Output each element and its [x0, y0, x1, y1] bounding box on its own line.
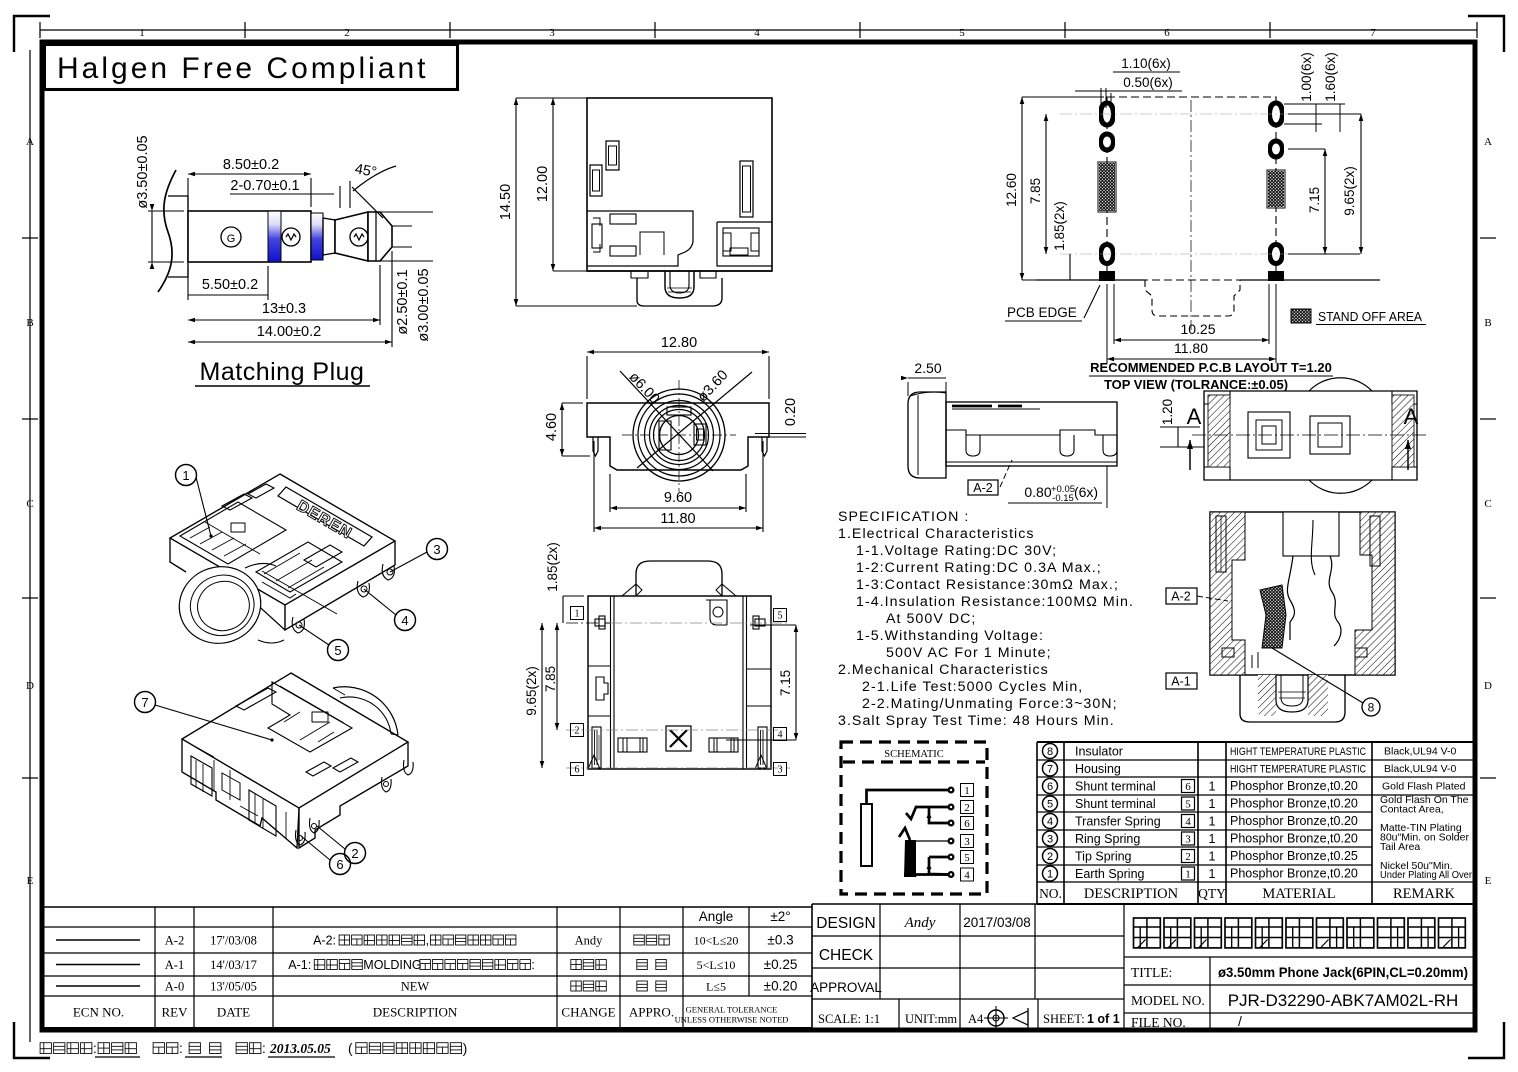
svg-text:C: C [1484, 498, 1491, 510]
svg-text:A-0: A-0 [165, 980, 184, 994]
svg-text:Phosphor Bronze,t0.20: Phosphor Bronze,t0.20 [1230, 779, 1358, 793]
svg-text:Black,UL94 V-0: Black,UL94 V-0 [1384, 746, 1457, 758]
svg-text:Insulator: Insulator [1075, 745, 1123, 759]
svg-text:±2°: ±2° [770, 909, 790, 924]
svg-text:SCHEMATIC: SCHEMATIC [884, 749, 944, 760]
svg-text:At 500V DC;: At 500V DC; [886, 611, 976, 627]
svg-text:PJR-D32290-ABK7AM02L-RH: PJR-D32290-ABK7AM02L-RH [1228, 991, 1459, 1010]
svg-text:A-1: A-1 [1171, 675, 1191, 689]
svg-text:Phosphor Bronze,t0.20: Phosphor Bronze,t0.20 [1230, 832, 1358, 846]
svg-text:11.80: 11.80 [1174, 340, 1208, 356]
svg-text:NO.: NO. [1039, 886, 1062, 901]
svg-text:Tip Spring: Tip Spring [1075, 850, 1132, 864]
svg-text:SHEET:: SHEET: [1043, 1012, 1085, 1026]
svg-text:,: , [426, 934, 429, 948]
svg-text:3: 3 [964, 836, 970, 848]
svg-text:4: 4 [754, 27, 760, 39]
svg-text:ø3.50mm Phone Jack(6PIN,CL=0.2: ø3.50mm Phone Jack(6PIN,CL=0.20mm) [1218, 965, 1468, 980]
svg-text:4: 4 [778, 730, 783, 741]
svg-text:A: A [1484, 136, 1492, 148]
svg-text::: : [179, 1041, 183, 1056]
svg-text:1: 1 [1209, 797, 1216, 811]
svg-text:5: 5 [778, 611, 783, 622]
svg-text:Matching Plug: Matching Plug [200, 358, 365, 386]
svg-text:Earth Spring: Earth Spring [1075, 867, 1145, 881]
svg-text:1: 1 [182, 468, 189, 483]
svg-text:A-1: A-1 [165, 958, 184, 972]
svg-text:6: 6 [1047, 781, 1053, 793]
svg-text:APPROVAL: APPROVAL [810, 980, 882, 995]
svg-text:6: 6 [575, 765, 580, 776]
svg-text:Under Plating All Over: Under Plating All Over [1380, 869, 1472, 881]
svg-text::: : [93, 1041, 97, 1056]
svg-text:Housing: Housing [1075, 762, 1121, 776]
svg-text:HIGHT TEMPERATURE PLASTIC: HIGHT TEMPERATURE PLASTIC [1230, 764, 1366, 776]
svg-text:D: D [26, 680, 34, 692]
svg-text:1.60(6x): 1.60(6x) [1323, 52, 1338, 102]
svg-text:2013.05.05: 2013.05.05 [269, 1041, 331, 1056]
svg-text:): ) [463, 1041, 468, 1056]
svg-text:1: 1 [1209, 832, 1216, 846]
svg-text:±0.3: ±0.3 [767, 933, 793, 948]
svg-text:Andy: Andy [575, 934, 604, 948]
svg-text:3: 3 [1185, 833, 1191, 845]
svg-text:PCB EDGE: PCB EDGE [1007, 305, 1077, 320]
svg-text:NEW: NEW [401, 980, 430, 994]
svg-text:1: 1 [1209, 780, 1216, 794]
svg-text:A-2: A-2 [973, 481, 993, 495]
svg-text:8.50±0.2: 8.50±0.2 [223, 157, 279, 173]
svg-text:14'/03/17: 14'/03/17 [210, 958, 257, 972]
svg-text:1: 1 [1047, 869, 1053, 881]
svg-text:3: 3 [778, 765, 783, 776]
svg-text:A-2:: A-2: [313, 934, 336, 948]
svg-text:QTY: QTY [1198, 886, 1226, 901]
svg-text:Halgen Free Compliant: Halgen Free Compliant [57, 52, 428, 85]
svg-text:UNLESS OTHERWISE NOTED: UNLESS OTHERWISE NOTED [675, 1015, 789, 1025]
svg-text:APPRO.: APPRO. [629, 1005, 674, 1020]
svg-text:SPECIFICATION :: SPECIFICATION : [838, 509, 969, 525]
svg-text:1: 1 [1209, 815, 1216, 829]
svg-text:3: 3 [433, 542, 440, 557]
svg-text:1.10(6x): 1.10(6x) [1121, 56, 1171, 71]
svg-text:A-1:: A-1: [288, 958, 311, 972]
svg-text:(6x): (6x) [1074, 484, 1098, 500]
svg-text:10.25: 10.25 [1180, 321, 1215, 337]
svg-text:A: A [26, 136, 34, 148]
svg-text:1: 1 [1209, 867, 1216, 881]
svg-text:A: A [1187, 404, 1202, 429]
svg-text:5: 5 [1185, 798, 1191, 810]
svg-text:Gold Flash Plated: Gold Flash Plated [1382, 781, 1466, 793]
svg-text:2-0.70±0.1: 2-0.70±0.1 [230, 178, 299, 194]
svg-text:4: 4 [964, 869, 970, 881]
svg-text:A-2: A-2 [165, 934, 184, 948]
svg-text:1-5.Withstanding Voltage:: 1-5.Withstanding Voltage: [856, 628, 1044, 644]
svg-text:1-4.Insulation Resistance:100M: 1-4.Insulation Resistance:100MΩ Min. [856, 594, 1134, 610]
svg-text:1: 1 [964, 785, 970, 797]
svg-text:0.20: 0.20 [783, 398, 799, 426]
svg-text:3: 3 [549, 27, 555, 39]
svg-text:1.20: 1.20 [1160, 399, 1175, 425]
svg-text:1.Electrical Characteristics: 1.Electrical Characteristics [838, 526, 1035, 542]
svg-text:CHECK: CHECK [819, 947, 874, 964]
svg-text:7: 7 [141, 695, 148, 710]
svg-text:DATE: DATE [217, 1005, 250, 1020]
svg-text:2: 2 [351, 846, 358, 861]
svg-text:Transfer Spring: Transfer Spring [1075, 815, 1161, 829]
svg-text:Shunt terminal: Shunt terminal [1075, 780, 1156, 794]
svg-text:±0.20: ±0.20 [764, 979, 798, 994]
svg-text:ø3.00±0.05: ø3.00±0.05 [416, 268, 432, 341]
svg-text:5: 5 [334, 643, 341, 658]
svg-text:4: 4 [1047, 816, 1053, 828]
svg-text:E: E [27, 875, 34, 887]
svg-text:Ring Spring: Ring Spring [1075, 832, 1140, 846]
svg-text:3: 3 [1047, 834, 1053, 846]
svg-text:Andy: Andy [904, 915, 936, 931]
svg-text:6: 6 [964, 818, 970, 830]
svg-text:2: 2 [575, 726, 580, 737]
svg-text:5: 5 [959, 27, 965, 39]
svg-text:2.Mechanical Characteristics: 2.Mechanical Characteristics [838, 662, 1049, 678]
svg-text:Contact Area,: Contact Area, [1380, 803, 1444, 815]
svg-text:6: 6 [336, 857, 343, 872]
svg-text:A-2: A-2 [1171, 590, 1191, 604]
svg-text:TITLE:: TITLE: [1131, 965, 1172, 980]
svg-text:1: 1 [575, 609, 580, 620]
svg-text:1.85(2x): 1.85(2x) [1052, 201, 1067, 251]
svg-text:17'/03/08: 17'/03/08 [210, 934, 257, 948]
svg-text:12.60: 12.60 [1004, 173, 1019, 207]
svg-text:5.50±0.2: 5.50±0.2 [202, 277, 258, 293]
svg-text:G: G [227, 233, 236, 245]
svg-text:1-2:Current Rating:DC 0.3A Max: 1-2:Current Rating:DC 0.3A Max.; [856, 560, 1102, 576]
svg-text:B: B [1484, 317, 1491, 329]
svg-text:13±0.3: 13±0.3 [262, 301, 306, 317]
svg-text:Phosphor Bronze,t0.20: Phosphor Bronze,t0.20 [1230, 797, 1358, 811]
svg-text:4: 4 [401, 613, 408, 628]
svg-text:L≤5: L≤5 [706, 980, 726, 994]
svg-text:7.15: 7.15 [778, 670, 793, 696]
svg-text:8: 8 [1047, 746, 1053, 758]
svg-text:Angle: Angle [699, 909, 734, 924]
svg-text:7: 7 [1370, 27, 1376, 39]
svg-text:12.80: 12.80 [661, 335, 697, 351]
svg-text:14.50: 14.50 [498, 184, 514, 220]
svg-text:A: A [1404, 404, 1419, 429]
svg-text:7.85: 7.85 [1028, 178, 1043, 204]
svg-text:STAND OFF AREA: STAND OFF AREA [1318, 309, 1422, 324]
svg-text:TOP VIEW (TOLRANCE:±0.05): TOP VIEW (TOLRANCE:±0.05) [1104, 377, 1288, 392]
svg-text:HIGHT TEMPERATURE PLASTIC: HIGHT TEMPERATURE PLASTIC [1230, 746, 1366, 758]
svg-text:RECOMMENDED P.C.B LAYOUT T=1.2: RECOMMENDED P.C.B LAYOUT T=1.20 [1090, 360, 1332, 375]
svg-text:1-1.Voltage Rating:DC 30V;: 1-1.Voltage Rating:DC 30V; [856, 543, 1057, 559]
svg-text:CHANGE: CHANGE [561, 1005, 615, 1020]
svg-text:5: 5 [964, 852, 970, 864]
svg-text:9.65(2x): 9.65(2x) [524, 666, 539, 716]
svg-text:5<L≤10: 5<L≤10 [697, 958, 736, 972]
svg-text:2: 2 [1047, 851, 1053, 863]
svg-text::: : [262, 1041, 266, 1056]
svg-text:10<L≤20: 10<L≤20 [694, 934, 739, 948]
svg-text:MOLDING: MOLDING [363, 958, 421, 972]
svg-text:REV: REV [162, 1005, 189, 1020]
svg-text:DESCRIPTION: DESCRIPTION [1084, 886, 1179, 902]
svg-text:12.00: 12.00 [535, 166, 551, 202]
svg-text:6: 6 [1185, 781, 1191, 793]
svg-text:ø2.50±0.1: ø2.50±0.1 [395, 269, 411, 334]
svg-text:0.80: 0.80 [1024, 484, 1051, 500]
svg-text:UNIT:mm: UNIT:mm [905, 1012, 957, 1026]
svg-text:9.60: 9.60 [664, 490, 692, 506]
svg-text:GENERAL TOLERANCE: GENERAL TOLERANCE [686, 1005, 778, 1015]
svg-text:(: ( [348, 1041, 353, 1056]
svg-text:7.15: 7.15 [1307, 187, 1322, 213]
svg-text:2017/03/08: 2017/03/08 [963, 915, 1031, 930]
svg-text:REMARK: REMARK [1393, 886, 1456, 902]
svg-text:2: 2 [344, 27, 350, 39]
svg-text:1: 1 [1185, 868, 1191, 880]
svg-text:5: 5 [1047, 799, 1053, 811]
svg-text:B: B [26, 317, 33, 329]
svg-text:ø3.50±0.05: ø3.50±0.05 [135, 135, 151, 208]
svg-text:Tail Area: Tail Area [1380, 841, 1420, 853]
svg-text:2.50: 2.50 [914, 360, 941, 376]
svg-text:9.65(2x): 9.65(2x) [1342, 166, 1357, 216]
svg-text:0.50(6x): 0.50(6x) [1123, 75, 1173, 90]
svg-text:4.60: 4.60 [544, 413, 560, 441]
svg-text:2: 2 [964, 802, 970, 814]
svg-text:A4: A4 [968, 1012, 984, 1026]
svg-text:-0.15: -0.15 [1052, 493, 1074, 504]
svg-text:/: / [1238, 1013, 1242, 1029]
svg-text:11.80: 11.80 [660, 511, 695, 527]
svg-text:6: 6 [1164, 27, 1170, 39]
svg-text:1.85(2x): 1.85(2x) [545, 542, 560, 592]
svg-text:1: 1 [139, 27, 145, 39]
svg-text:Shunt terminal: Shunt terminal [1075, 797, 1156, 811]
svg-text:4: 4 [1185, 816, 1191, 828]
svg-text:7: 7 [1047, 764, 1053, 776]
svg-text:FILE NO.: FILE NO. [1131, 1015, 1186, 1030]
svg-text:D: D [1484, 680, 1492, 692]
svg-text:Phosphor Bronze,t0.20: Phosphor Bronze,t0.20 [1230, 867, 1358, 881]
svg-text:±0.25: ±0.25 [764, 957, 798, 972]
svg-text:C: C [26, 498, 33, 510]
svg-text:ECN NO.: ECN NO. [73, 1005, 124, 1020]
svg-text:2-2.Mating/Unmating Force:3~30: 2-2.Mating/Unmating Force:3~30N; [862, 696, 1118, 712]
svg-text:DESCRIPTION: DESCRIPTION [373, 1005, 458, 1020]
svg-text:2-1.Life Test:5000 Cycles Min,: 2-1.Life Test:5000 Cycles Min, [862, 679, 1083, 695]
svg-text:1: 1 [1209, 850, 1216, 864]
svg-text:2: 2 [1185, 851, 1191, 863]
svg-text:Phosphor Bronze,t0.25: Phosphor Bronze,t0.25 [1230, 849, 1358, 863]
svg-text:500V AC For 1 Minute;: 500V AC For 1 Minute; [886, 645, 1052, 661]
svg-text:Phosphor Bronze,t0.20: Phosphor Bronze,t0.20 [1230, 814, 1358, 828]
svg-text:13'/05/05: 13'/05/05 [210, 980, 257, 994]
svg-text:14.00±0.2: 14.00±0.2 [257, 324, 321, 340]
svg-text:1-3:Contact Resistance:30mΩ Ma: 1-3:Contact Resistance:30mΩ Max.; [856, 577, 1119, 593]
svg-text:DESIGN: DESIGN [816, 915, 875, 932]
svg-text::: : [531, 958, 534, 972]
svg-text:3.Salt Spray Test Time: 48 Ho: 3.Salt Spray Test Time: 48 Hours Min. [838, 713, 1115, 729]
svg-text:MATERIAL: MATERIAL [1262, 886, 1335, 902]
svg-text:7.85: 7.85 [543, 666, 558, 692]
svg-text:E: E [1485, 875, 1492, 887]
svg-text:SCALE: 1:1: SCALE: 1:1 [818, 1012, 880, 1026]
svg-text:MODEL NO.: MODEL NO. [1131, 993, 1205, 1008]
svg-text:1 of 1: 1 of 1 [1087, 1012, 1120, 1026]
svg-text:Black,UL94 V-0: Black,UL94 V-0 [1384, 763, 1457, 775]
svg-text:1.00(6x): 1.00(6x) [1299, 52, 1314, 102]
svg-text:8: 8 [1368, 701, 1375, 715]
